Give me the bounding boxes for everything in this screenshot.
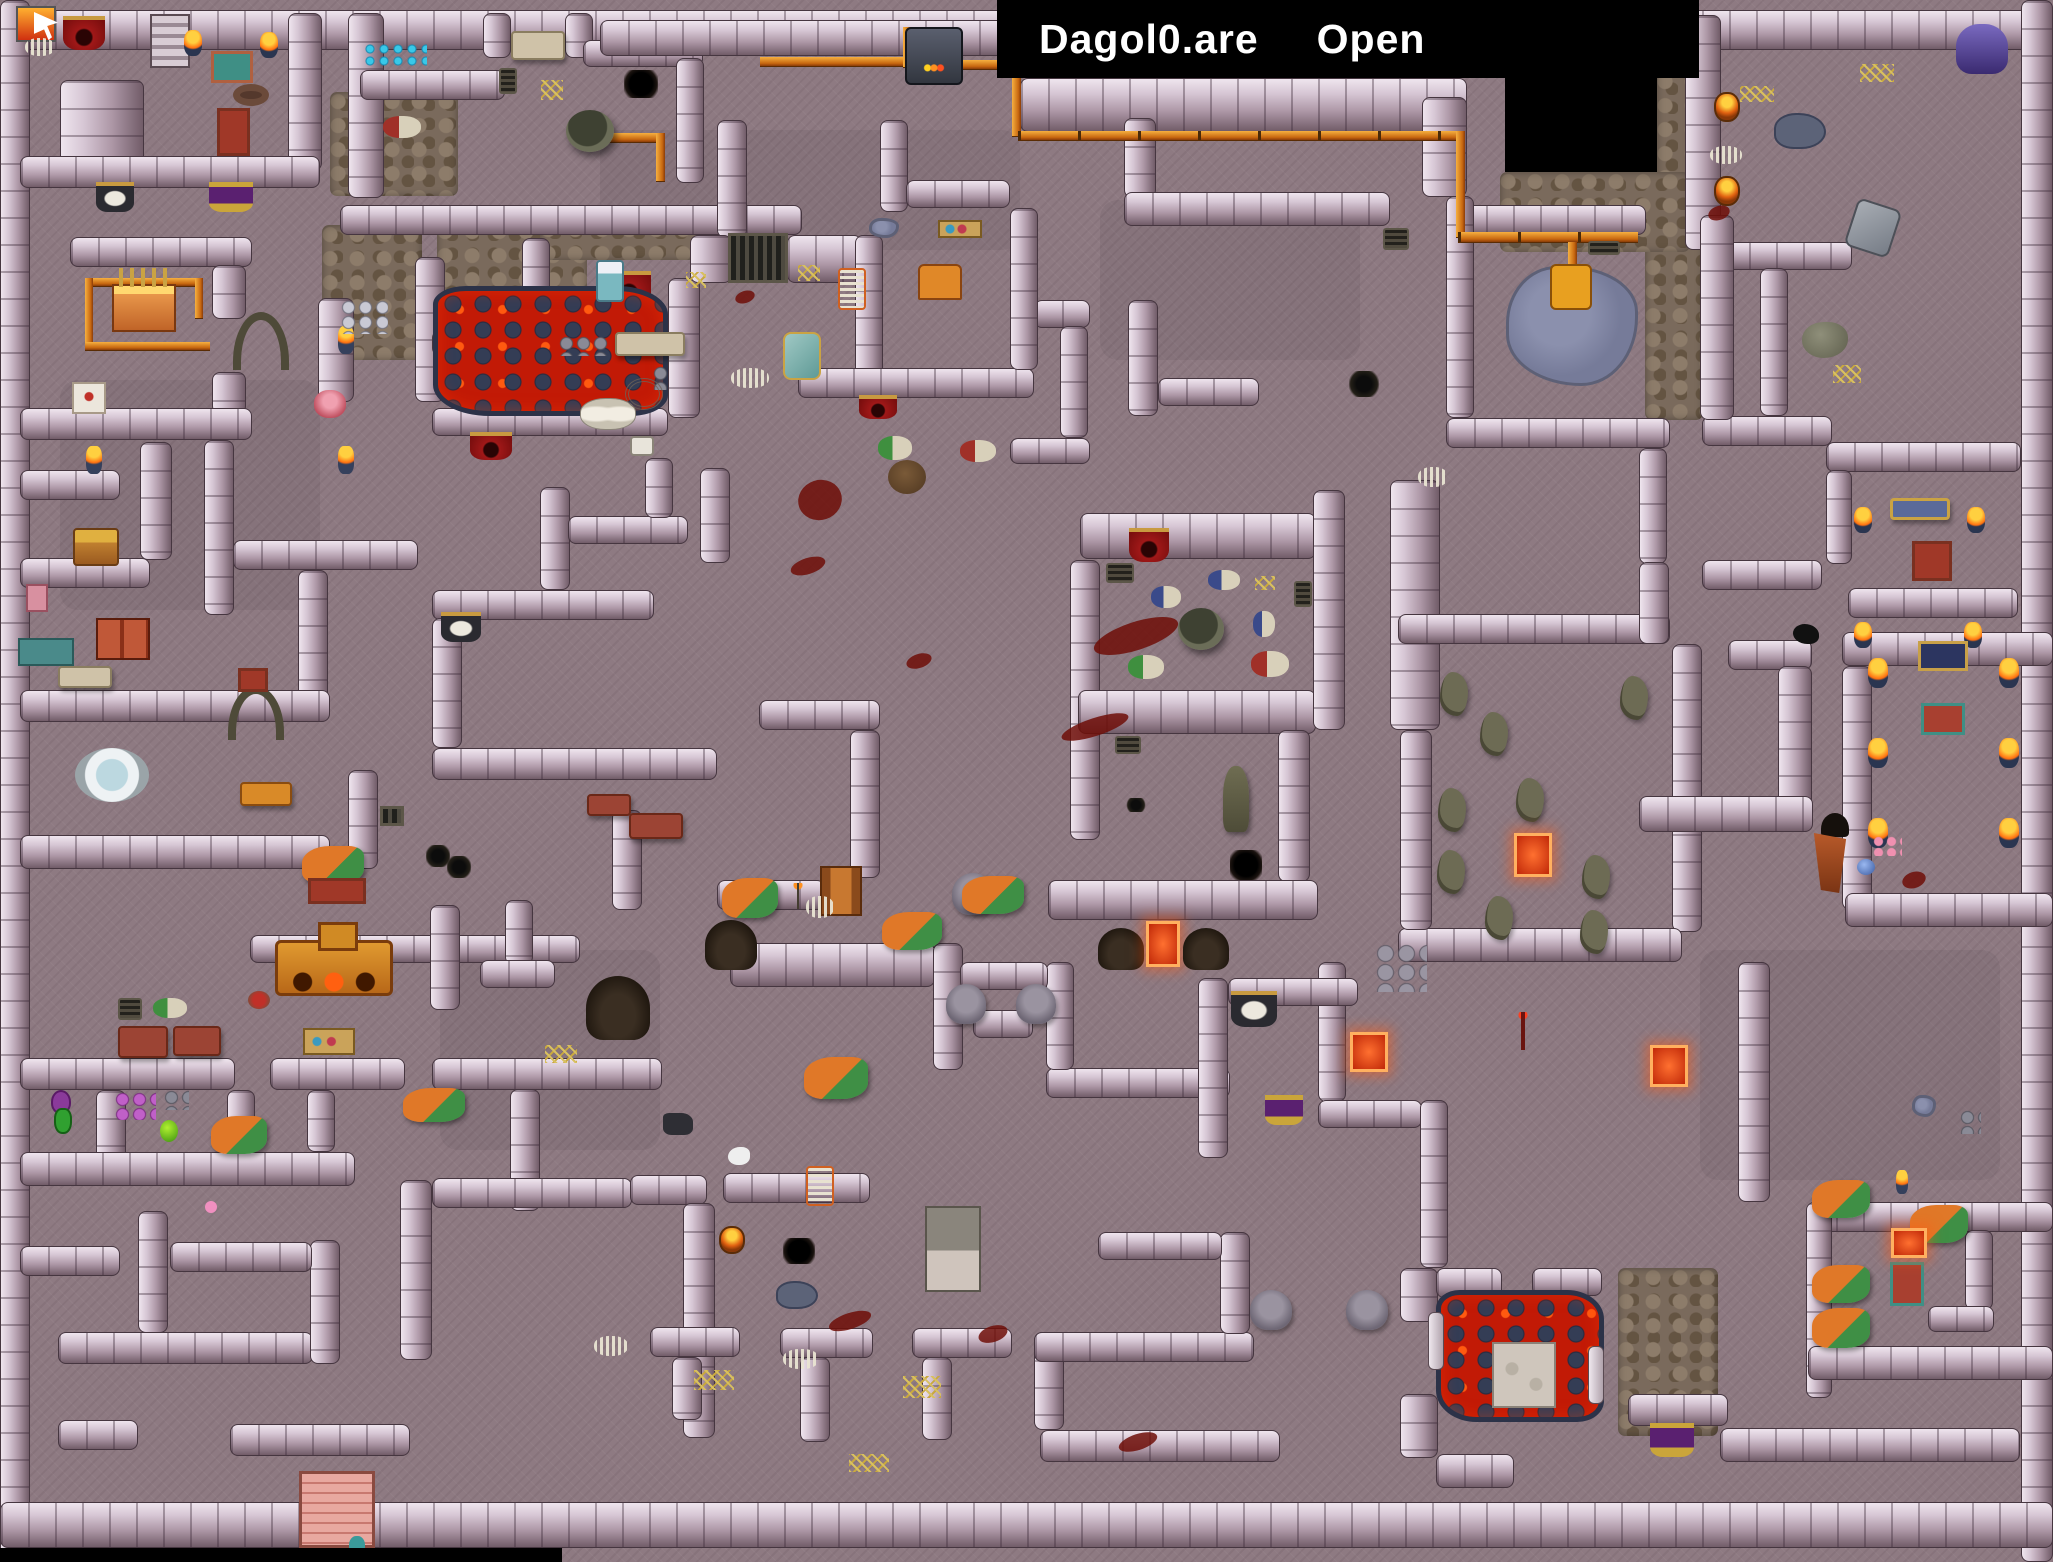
blood-stain: [788, 553, 827, 579]
wall-segment: [1826, 442, 2021, 472]
wall-segment: [170, 1242, 312, 1272]
wall-vent: [1588, 241, 1620, 255]
boiler-machine: [905, 27, 963, 85]
water-blob: [1774, 113, 1826, 149]
orange-chair: [918, 264, 962, 300]
wall-segment: [288, 13, 322, 171]
blue-bowl: [869, 218, 899, 238]
wall-segment: [20, 690, 330, 722]
brazier: [1999, 738, 2019, 768]
wall-segment: [204, 440, 234, 615]
bones: [1255, 576, 1275, 590]
wall-segment: [540, 487, 570, 590]
map-canvas[interactable]: Dagol0.are Open: [0, 0, 2053, 1562]
skull-statue: [1346, 1290, 1388, 1330]
wall-segment: [1760, 268, 1788, 416]
teal-bed: [596, 260, 624, 302]
wall-segment: [1639, 448, 1667, 564]
title-bar: Dagol0.are Open: [997, 0, 1699, 78]
wall-segment: [230, 1424, 410, 1456]
wall-segment: [1458, 205, 1646, 235]
pink-hearts: [1872, 836, 1902, 856]
blue-demon-statue: [1956, 24, 2008, 74]
wall-segment: [400, 1180, 432, 1360]
demon-banner: [470, 432, 512, 460]
glowing-rug: [1350, 1032, 1388, 1072]
black-pit: [783, 1238, 815, 1264]
skull-pile: [1375, 944, 1427, 992]
fallen-body: [878, 436, 912, 460]
wall-segment: [1826, 470, 1852, 564]
black-pit: [624, 70, 658, 98]
wall-segment: [1060, 326, 1088, 438]
orange-pipe: [1456, 131, 1465, 237]
wall-segment: [850, 730, 880, 878]
urn-row: [558, 336, 610, 356]
fallen-body: [1208, 570, 1240, 590]
wall-segment: [645, 458, 673, 518]
market-tent: [962, 876, 1024, 914]
wall-segment: [480, 960, 555, 988]
skeleton: [25, 38, 55, 56]
wall-segment: [855, 235, 883, 385]
wall-segment: [212, 265, 246, 319]
map-file-name: Dagol0.are: [1039, 16, 1259, 63]
wall-segment: [800, 1357, 830, 1442]
gray-pots: [163, 1090, 189, 1110]
wall-segment: [1313, 490, 1345, 730]
dirt-mound: [888, 460, 926, 494]
wall-segment: [20, 470, 120, 500]
portcullis: [728, 233, 788, 283]
anvil: [663, 1113, 693, 1135]
wall-segment: [1390, 480, 1440, 730]
candle-altar: [112, 284, 176, 332]
demon-banner: [63, 16, 105, 50]
skeleton: [1418, 467, 1448, 487]
wall-segment: [348, 13, 384, 198]
wall-segment: [483, 13, 511, 58]
black-spider: [1349, 371, 1379, 397]
brazier: [1999, 818, 2019, 848]
teal-counter: [18, 638, 74, 666]
fallen-body: [1253, 611, 1275, 637]
wall-segment: [307, 1090, 335, 1152]
brazier: [1999, 658, 2019, 688]
demon-banner: [859, 395, 897, 419]
demon-banner: [1129, 528, 1169, 562]
orange-pipe: [85, 342, 210, 350]
blue-pot: [1912, 1095, 1936, 1117]
cyan-droplets: [363, 43, 427, 67]
wall-segment: [1420, 1100, 1448, 1268]
wall-segment: [650, 1327, 740, 1357]
black-bat: [1821, 813, 1849, 837]
orange-pipe: [760, 57, 910, 66]
wall-segment: [759, 700, 880, 730]
wall-segment: [20, 156, 320, 188]
pink-fort: [299, 1471, 375, 1548]
bones: [545, 1045, 577, 1063]
map-status: Open: [1317, 16, 1426, 63]
blood-pool: [1090, 609, 1182, 663]
red-rug: [238, 668, 268, 692]
bones: [541, 80, 563, 100]
broom-table: [303, 1028, 355, 1055]
wall-segment: [1702, 416, 1832, 446]
floor-emblem: [625, 378, 663, 410]
torch-stand: [338, 446, 354, 474]
wall-segment: [568, 516, 688, 544]
wall-segment: [1124, 118, 1156, 198]
white-pillar: [1428, 1312, 1444, 1370]
twisted-tree: [1580, 910, 1608, 954]
blue-orb: [1857, 859, 1875, 875]
wall-segment: [505, 900, 533, 965]
skeleton: [383, 116, 421, 138]
dark-well: [566, 110, 614, 152]
wall-segment: [880, 120, 908, 212]
wall-segment: [1080, 513, 1316, 559]
wall-segment: [1278, 730, 1310, 882]
rock-creature: [776, 1281, 818, 1309]
wall-segment: [310, 1240, 340, 1364]
blood-stain: [734, 288, 757, 306]
market-tent: [1812, 1265, 1870, 1303]
bones: [694, 1370, 734, 1390]
red-rug: [308, 878, 366, 904]
wall-segment: [1720, 1428, 2020, 1462]
gargoyle-statue: [1016, 984, 1056, 1024]
skull-platform: [1492, 1342, 1556, 1408]
gray-pot: [1959, 1110, 1981, 1134]
brazier: [184, 30, 202, 56]
wall-segment: [1639, 796, 1813, 832]
twisted-tree: [1440, 672, 1468, 716]
wall-segment: [1198, 978, 1228, 1158]
glowing-rug: [1146, 921, 1180, 967]
wall-segment: [360, 70, 505, 100]
skeleton: [594, 1336, 628, 1356]
wall-segment: [1628, 1394, 1728, 1426]
skeleton: [783, 1349, 819, 1369]
wall-segment: [906, 180, 1010, 208]
wall-segment: [1721, 242, 1852, 270]
wall-segment: [1928, 1306, 1994, 1332]
small-spider: [1126, 798, 1146, 812]
market-tent: [1812, 1180, 1870, 1218]
glowing-rug: [1514, 833, 1552, 877]
fallen-body: [1128, 655, 1164, 679]
glowing-rug: [1891, 1228, 1927, 1258]
wall-segment: [140, 442, 172, 560]
wall-segment: [676, 58, 704, 183]
wall-segment: [1639, 562, 1669, 644]
wall-vent: [1294, 581, 1312, 607]
twisted-tree: [1620, 676, 1648, 720]
purple-banner: [209, 182, 253, 212]
brazier: [1967, 507, 1985, 533]
floor-grate: [380, 806, 404, 826]
demon-face-statue: [314, 390, 346, 418]
skeleton: [153, 998, 187, 1018]
wall-segment: [1098, 1232, 1222, 1260]
wall-segment: [1446, 418, 1670, 448]
market-tent: [722, 878, 778, 918]
wall-segment: [1738, 962, 1770, 1202]
brazier: [1854, 622, 1872, 648]
bench: [511, 31, 565, 60]
gold-chest: [73, 528, 119, 566]
gargoyle-on-steps: [925, 1206, 981, 1292]
market-tent: [403, 1088, 465, 1122]
wall-segment: [798, 368, 1034, 398]
crystal-sarcophagus: [783, 332, 821, 380]
wall-segment: [58, 1420, 138, 1450]
white-basin: [75, 748, 149, 802]
gargoyle-statue: [946, 984, 986, 1024]
fallen-body: [960, 440, 996, 462]
wall-vent: [1106, 563, 1134, 583]
winged-demon: [1183, 928, 1229, 970]
wall-segment: [2021, 0, 2053, 1562]
wall-segment: [1220, 1232, 1250, 1334]
table: [615, 332, 685, 356]
bones: [1833, 365, 1861, 383]
twisted-tree: [1480, 712, 1508, 756]
wall-segment: [723, 1173, 870, 1203]
crib: [630, 436, 654, 456]
feast-table: [118, 1026, 168, 1058]
red-dish: [248, 991, 270, 1009]
wall-segment: [432, 748, 717, 780]
brazier: [260, 32, 278, 58]
hanging-skeleton: [806, 1166, 834, 1206]
candelabrum: [791, 883, 805, 909]
orange-pipe: [1018, 131, 1463, 140]
hanging-brazier: [719, 1226, 745, 1254]
wall-segment: [1034, 1332, 1254, 1362]
orange-pipe: [656, 133, 665, 181]
purple-pots: [114, 1092, 156, 1120]
bronze-statue: [1223, 766, 1249, 832]
fire-pit: [233, 84, 269, 106]
purple-banner: [1265, 1095, 1303, 1125]
wall-segment: [1128, 300, 1158, 416]
bones: [903, 1376, 941, 1398]
feast-table: [173, 1026, 221, 1056]
potion-shelf: [938, 220, 982, 238]
winged-demon: [1098, 928, 1144, 970]
blood-trail: [793, 474, 847, 526]
wall-torch: [1896, 1170, 1908, 1194]
pink-dresser: [26, 584, 48, 612]
wall-segment: [1400, 730, 1432, 930]
navy-altar: [1918, 641, 1968, 671]
teal-rug: [211, 51, 253, 83]
skeleton: [731, 368, 769, 388]
brazier: [1868, 738, 1888, 768]
twisted-tree: [1438, 788, 1466, 832]
bones: [849, 1454, 889, 1472]
wall-segment: [1400, 1394, 1438, 1458]
wall-segment: [1700, 215, 1734, 420]
brazier: [1854, 507, 1872, 533]
wall-segment: [1848, 588, 2018, 618]
wall-vent: [118, 998, 142, 1020]
wall-segment: [70, 237, 252, 267]
white-shrine: [72, 382, 106, 414]
orange-pipe: [195, 278, 203, 318]
ornate-rug: [1890, 1262, 1924, 1306]
red-cabinet: [96, 618, 150, 660]
red-table: [629, 813, 683, 839]
green-bottle: [54, 1108, 72, 1134]
dark-well: [1178, 608, 1224, 650]
market-tent: [211, 1116, 267, 1154]
wall-segment: [1124, 192, 1390, 226]
hanging-skeleton: [838, 268, 866, 310]
white-bird: [728, 1147, 750, 1165]
wall-segment: [1808, 1346, 2053, 1380]
wall-vent: [1383, 228, 1409, 250]
bones: [798, 265, 820, 281]
wall-segment: [1010, 438, 1090, 464]
hanging-brazier: [1714, 92, 1740, 122]
black-overlay: [0, 1548, 562, 1562]
brown-gargoyle: [586, 976, 650, 1040]
wall-segment: [700, 468, 730, 563]
black-cat: [1793, 624, 1819, 644]
blood-stain: [904, 650, 933, 671]
wall-segment: [1398, 928, 1682, 962]
wall-segment: [1845, 893, 2053, 927]
orange-bench: [240, 782, 292, 806]
wall-segment: [1020, 78, 1467, 132]
skeleton: [1710, 146, 1742, 164]
red-bench: [587, 794, 631, 816]
glowing-rug: [1650, 1045, 1688, 1087]
blood-stain: [1900, 869, 1928, 892]
fallen-body: [1151, 586, 1181, 608]
red-candelabrum: [1510, 1012, 1536, 1050]
stone-archway: [233, 312, 289, 370]
twisted-tree: [1437, 850, 1465, 894]
wall-segment: [1158, 378, 1259, 406]
wall-segment: [922, 1357, 952, 1440]
skull-banner: [441, 612, 481, 642]
black-spider: [447, 856, 471, 878]
wall-segment: [0, 0, 30, 1562]
purple-banner: [1650, 1423, 1694, 1457]
wall-segment: [1040, 1430, 1280, 1462]
wall-segment: [20, 835, 330, 869]
white-pillar: [1588, 1346, 1604, 1404]
hanging-brazier: [1714, 176, 1740, 206]
wall-segment: [1702, 560, 1822, 590]
bones: [686, 272, 706, 288]
wall-segment: [1965, 1230, 1993, 1310]
brazier: [1868, 658, 1888, 688]
bones: [1860, 64, 1894, 82]
bones: [1740, 86, 1774, 102]
wall-segment: [20, 1058, 235, 1090]
skull-banner: [1231, 991, 1277, 1027]
tomb-slab: [1843, 197, 1902, 259]
green-egg: [160, 1120, 178, 1142]
wall-segment: [717, 120, 747, 238]
orange-pipe: [85, 278, 93, 350]
pipe-elbow: [1550, 264, 1592, 310]
pink-ball: [205, 1201, 217, 1213]
market-tent: [882, 912, 942, 950]
wall-segment: [432, 1178, 632, 1208]
market-tent: [1812, 1308, 1870, 1348]
blue-table: [1890, 498, 1950, 520]
red-rug: [1912, 541, 1952, 581]
wall-segment: [20, 1152, 355, 1186]
wall-segment: [1034, 300, 1090, 328]
torch-stand: [86, 446, 102, 474]
wall-segment: [1436, 1454, 1514, 1488]
wall-segment: [20, 408, 252, 440]
wall-segment: [1048, 880, 1318, 920]
wall-segment: [270, 1058, 405, 1090]
twisted-tree: [1485, 896, 1513, 940]
skull-statue: [1250, 1290, 1292, 1330]
wall-segment: [630, 1175, 707, 1205]
twisted-tree: [1516, 778, 1544, 822]
wall-segment: [1318, 1100, 1422, 1128]
ornate-rug: [1921, 703, 1965, 735]
skull-banner: [96, 182, 134, 212]
twisted-tree: [1582, 855, 1610, 899]
fallen-body: [1251, 651, 1289, 677]
silver-pots: [340, 300, 388, 334]
wall-segment: [138, 1211, 168, 1333]
wall-segment: [58, 1332, 313, 1364]
long-table: [58, 666, 112, 688]
wall-segment: [430, 905, 460, 1010]
bakery-oven: [275, 940, 393, 996]
wall-vent: [1115, 736, 1141, 754]
black-pit: [1230, 850, 1262, 880]
flying-gargoyle: [705, 920, 757, 970]
wall-segment: [1010, 208, 1038, 370]
red-runner-rug: [217, 108, 250, 156]
market-tent: [804, 1057, 868, 1099]
wall-segment: [233, 540, 418, 570]
wall-segment: [1672, 644, 1702, 932]
skeleton: [806, 896, 834, 918]
wall-vent: [499, 68, 517, 94]
boulder: [1802, 322, 1848, 358]
wall-segment: [20, 1246, 120, 1276]
wall-segment: [1398, 614, 1670, 644]
